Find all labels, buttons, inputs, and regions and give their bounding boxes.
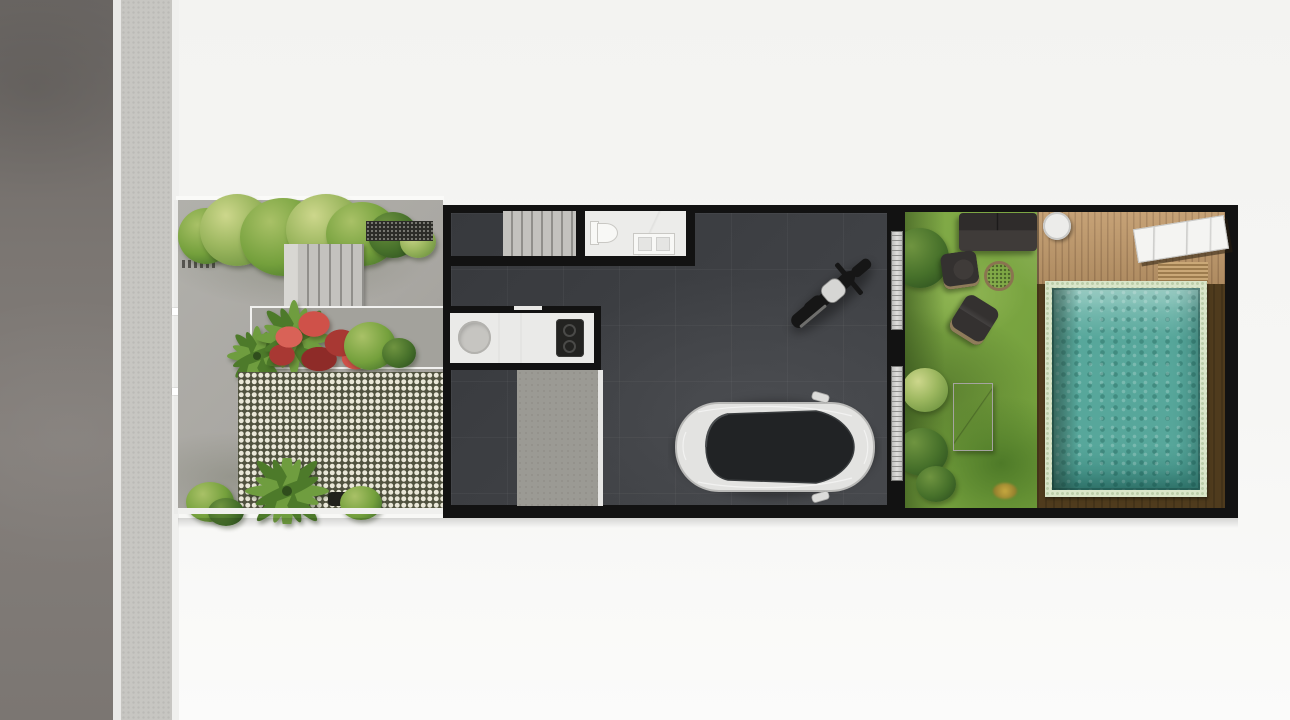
floor-plan (178, 200, 1238, 520)
burner (563, 324, 576, 337)
garage-door-track (598, 370, 603, 506)
car (668, 390, 882, 504)
staircase (503, 211, 576, 256)
garden-table (953, 383, 993, 451)
vanity-basin (633, 233, 675, 255)
door-sill (514, 306, 542, 310)
sliding-glass-door (891, 366, 903, 481)
motorcycle (766, 238, 896, 350)
sliding-glass-door (891, 231, 903, 330)
site-plan-render (0, 0, 1290, 720)
wall (686, 205, 695, 261)
shrub (916, 466, 956, 502)
cooktop (556, 319, 584, 357)
basin (656, 237, 670, 251)
street (0, 0, 115, 720)
kitchen-sink (458, 321, 491, 354)
outdoor-sofa (959, 213, 1037, 251)
basin (638, 237, 652, 251)
gravel-strip (366, 221, 433, 241)
fire-pit (984, 261, 1014, 291)
plant-tuft (993, 483, 1017, 499)
shrub (382, 338, 416, 368)
burner (563, 340, 576, 353)
wall (576, 205, 585, 261)
wall (443, 256, 695, 266)
garage-apron (517, 370, 601, 506)
shrub (902, 368, 948, 412)
armchair (940, 250, 981, 291)
sidewalk (121, 0, 173, 720)
round-side-table (1043, 212, 1071, 240)
palm-plant (228, 458, 346, 524)
plan-drop-shadow (178, 518, 1238, 528)
street-curb-line (113, 0, 121, 720)
shrub (340, 486, 382, 520)
pool-shadow (1052, 288, 1078, 490)
